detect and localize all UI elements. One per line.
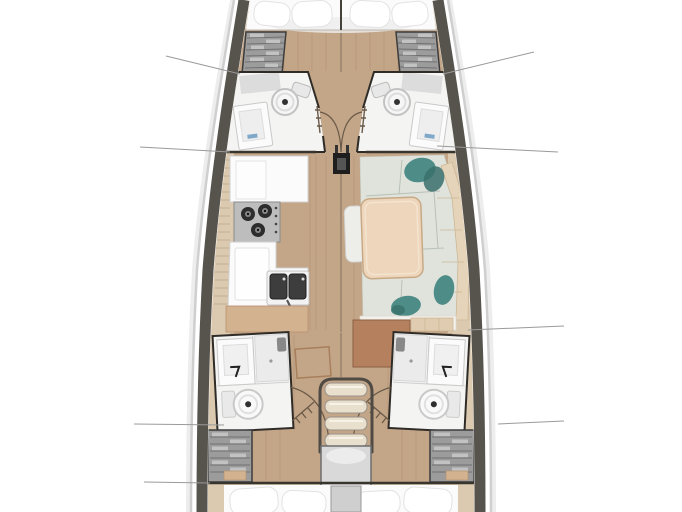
aft-locker-right: [430, 430, 474, 482]
boat-floorplan-canvas: [0, 0, 682, 512]
saloon-table: [361, 197, 424, 279]
engine-box: [331, 486, 361, 512]
leader-line: [437, 146, 558, 152]
fwd-head-left: [224, 72, 325, 152]
stove-icon: [234, 202, 280, 242]
leader-line: [468, 326, 564, 330]
fridge-top: [235, 248, 269, 300]
aft-berth-left: [208, 485, 342, 512]
galley-sink-icon: [267, 271, 309, 306]
fwd-locker-left: [242, 32, 286, 74]
aft-head-right: [389, 332, 470, 432]
boat-floorplan: [0, 0, 682, 512]
fwd-head-right: [357, 72, 458, 152]
galley-drawers: [226, 306, 308, 332]
aft-locker-left: [208, 430, 252, 482]
leader-line: [498, 421, 564, 424]
fwd-locker-right: [396, 32, 440, 74]
bench-end: [411, 318, 453, 331]
aft-head-left: [213, 332, 294, 432]
saloon: [344, 154, 469, 330]
bow-berth: [246, 0, 436, 33]
interior: [202, 0, 480, 512]
